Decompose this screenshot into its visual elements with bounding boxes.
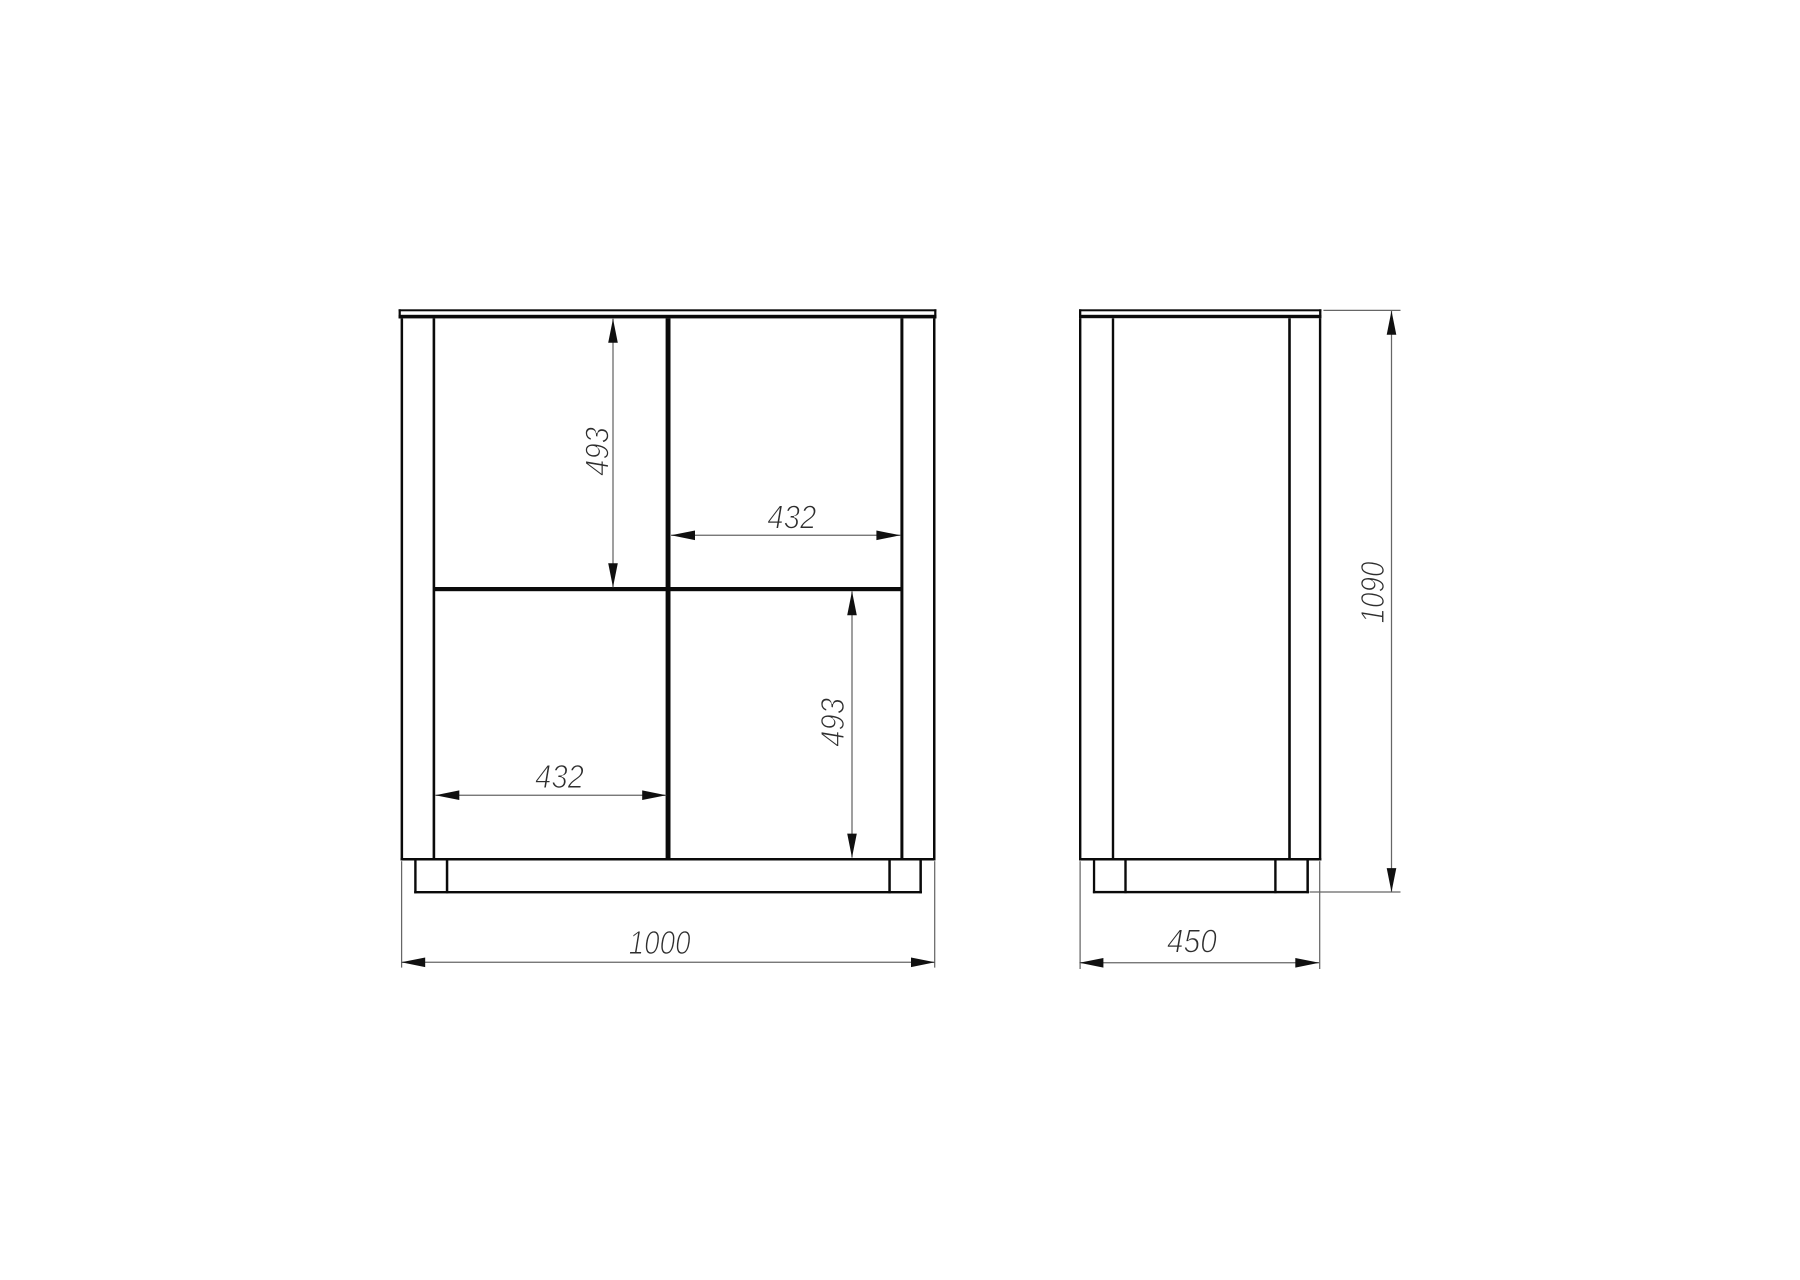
svg-text:1000: 1000	[629, 924, 692, 961]
svg-text:493: 493	[578, 426, 615, 476]
svg-text:432: 432	[767, 498, 816, 535]
svg-text:450: 450	[1167, 922, 1218, 959]
svg-text:1090: 1090	[1354, 561, 1391, 624]
svg-text:493: 493	[814, 697, 851, 747]
svg-text:432: 432	[535, 758, 584, 795]
